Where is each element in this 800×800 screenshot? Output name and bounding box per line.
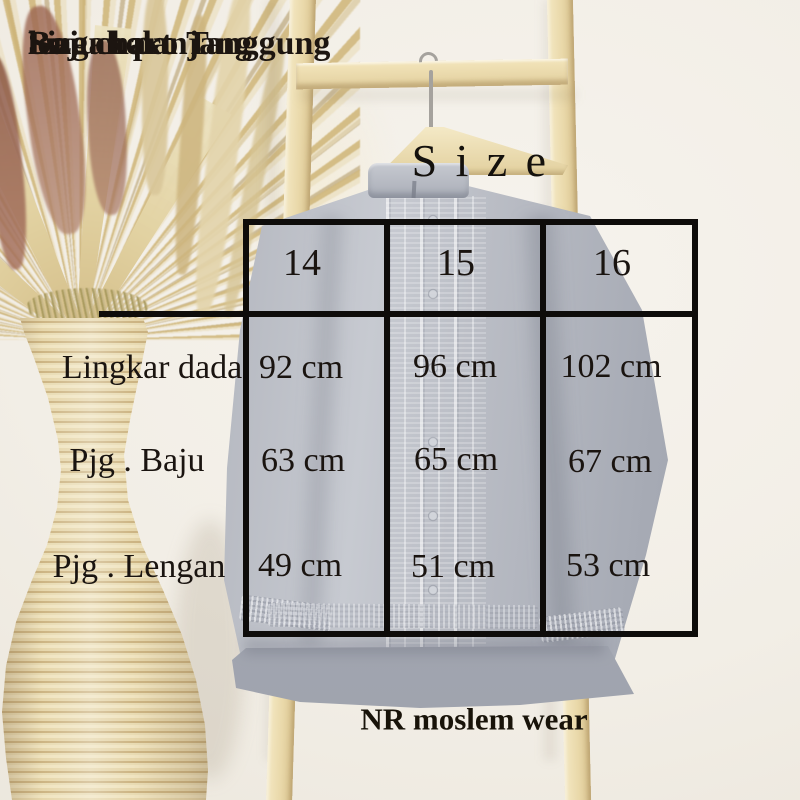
table-right-border [692,219,698,637]
table-bottom-border [243,631,698,637]
title-line-3: lengan panjang [28,20,252,67]
table-cell: 102 cm [560,350,661,384]
table-cell: 96 cm [413,350,497,384]
row-label-pjg-baju: Pjg . Baju [69,444,204,478]
size-chart-poster: Size chart Baju koko Tanggung lengan pan… [0,0,800,800]
table-cell: 51 cm [411,550,495,584]
table-cell: 92 cm [259,351,343,385]
table-left-border [243,219,249,637]
table-top-border [243,219,698,225]
table-column-divider [540,219,546,637]
row-label-lingkar-dada: Lingkar dada [62,351,242,385]
column-header-1: 14 [283,244,321,282]
size-heading: Size [412,138,565,184]
table-cell: 65 cm [414,443,498,477]
column-header-3: 16 [593,244,631,282]
table-cell: 63 cm [261,444,345,478]
hanger-hook-stem [429,70,433,130]
table-cell: 53 cm [566,549,650,583]
column-header-2: 15 [437,244,475,282]
hem-shadow [244,638,604,654]
row-label-pjg-lengan: Pjg . Lengan [53,550,226,584]
table-column-divider [384,219,390,637]
table-cell: 67 cm [568,445,652,479]
table-cell: 49 cm [258,549,342,583]
rung-shadow [300,90,576,100]
brand-name: NR moslem wear [360,704,587,735]
hem-embroidery [268,603,538,629]
table-header-divider [99,311,698,317]
